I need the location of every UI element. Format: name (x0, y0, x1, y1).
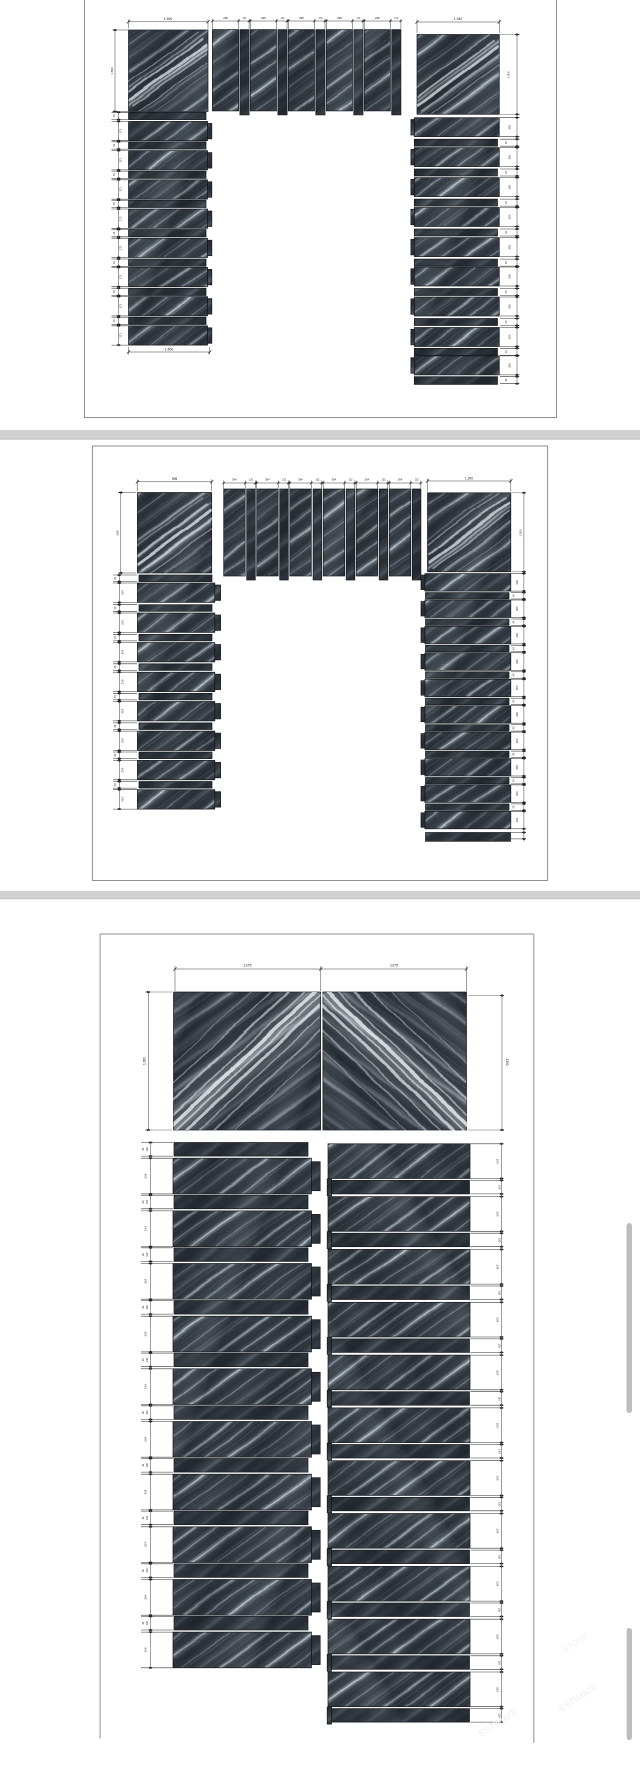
svg-text:334: 334 (495, 1581, 499, 1586)
svg-text:132: 132 (282, 479, 287, 482)
svg-text:130: 130 (498, 1238, 502, 1243)
svg-text:334: 334 (495, 1528, 499, 1533)
svg-text:130: 130 (145, 1199, 149, 1204)
svg-text:334: 334 (495, 1634, 499, 1639)
svg-text:1.340: 1.340 (454, 17, 463, 21)
svg-text:130: 130 (498, 1555, 502, 1560)
svg-text:130: 130 (498, 1185, 502, 1190)
svg-text:300: 300 (508, 244, 512, 249)
svg-text:1.500: 1.500 (519, 529, 523, 536)
svg-text:364: 364 (398, 478, 403, 482)
svg-text:130: 130 (145, 1357, 149, 1362)
svg-text:300: 300 (515, 764, 519, 769)
svg-text:130: 130 (498, 1502, 502, 1507)
svg-text:300: 300 (508, 334, 512, 339)
svg-text:314: 314 (121, 590, 125, 595)
svg-text:172: 172 (318, 17, 323, 20)
svg-text:314: 314 (121, 708, 125, 713)
svg-text:334: 334 (495, 1264, 499, 1269)
svg-text:130: 130 (498, 1660, 502, 1665)
svg-text:1.500: 1.500 (110, 67, 114, 75)
svg-text:334: 334 (495, 1423, 499, 1428)
svg-text:298: 298 (223, 16, 228, 20)
svg-text:300: 300 (515, 817, 519, 822)
svg-text:364: 364 (365, 478, 370, 482)
svg-text:171: 171 (119, 187, 123, 192)
svg-text:334: 334 (144, 1437, 148, 1442)
svg-text:334: 334 (144, 1384, 148, 1389)
svg-text:300: 300 (508, 363, 512, 368)
svg-text:334: 334 (495, 1687, 499, 1692)
svg-text:ESTIMATE: ESTIMATE (557, 1681, 600, 1714)
svg-text:314: 314 (121, 767, 125, 772)
svg-text:364: 364 (232, 478, 237, 482)
svg-text:171: 171 (119, 303, 123, 308)
svg-text:334: 334 (495, 1370, 499, 1375)
svg-text:364: 364 (265, 478, 270, 482)
svg-text:334: 334 (144, 1647, 148, 1652)
svg-text:171: 171 (119, 216, 123, 221)
svg-text:300: 300 (515, 791, 519, 796)
svg-text:1300: 1300 (505, 1058, 509, 1065)
svg-text:300: 300 (515, 659, 519, 664)
svg-text:314: 314 (121, 738, 125, 743)
svg-text:130: 130 (145, 1463, 149, 1468)
svg-text:1.500: 1.500 (165, 347, 174, 351)
svg-text:171: 171 (119, 245, 123, 250)
svg-text:130: 130 (145, 1620, 149, 1625)
svg-text:364: 364 (298, 478, 303, 482)
svg-text:1375: 1375 (390, 963, 398, 967)
svg-text:300: 300 (515, 738, 519, 743)
svg-text:298: 298 (375, 16, 380, 20)
svg-text:1.500: 1.500 (507, 71, 511, 78)
svg-text:334: 334 (495, 1211, 499, 1216)
svg-text:132: 132 (249, 479, 254, 482)
svg-text:334: 334 (144, 1226, 148, 1231)
svg-text:298: 298 (299, 16, 304, 20)
svg-text:300: 300 (515, 606, 519, 611)
svg-text:300: 300 (515, 580, 519, 585)
svg-text:314: 314 (121, 649, 125, 654)
svg-text:300: 300 (508, 154, 512, 159)
svg-text:300: 300 (508, 274, 512, 279)
svg-text:334: 334 (495, 1159, 499, 1164)
svg-text:171: 171 (119, 157, 123, 162)
svg-text:334: 334 (144, 1331, 148, 1336)
svg-text:STONE: STONE (560, 1630, 590, 1654)
svg-text:1.300: 1.300 (143, 1057, 147, 1065)
svg-text:300: 300 (508, 184, 512, 189)
svg-text:334: 334 (144, 1279, 148, 1284)
svg-text:300: 300 (515, 712, 519, 717)
svg-text:290: 290 (115, 530, 119, 535)
svg-text:300: 300 (515, 685, 519, 690)
svg-text:998: 998 (172, 477, 178, 481)
svg-text:334: 334 (144, 1489, 148, 1494)
svg-text:334: 334 (144, 1542, 148, 1547)
svg-text:334: 334 (144, 1595, 148, 1600)
svg-text:172: 172 (356, 17, 361, 20)
svg-text:334: 334 (144, 1173, 148, 1178)
svg-text:172: 172 (394, 17, 399, 20)
svg-text:130: 130 (145, 1410, 149, 1415)
svg-text:172: 172 (243, 17, 248, 20)
svg-text:300: 300 (508, 304, 512, 309)
svg-text:1.500: 1.500 (164, 17, 173, 21)
svg-text:132: 132 (349, 479, 354, 482)
svg-text:130: 130 (498, 1291, 502, 1296)
svg-text:130: 130 (145, 1147, 149, 1152)
svg-text:130: 130 (498, 1608, 502, 1613)
svg-text:130: 130 (145, 1305, 149, 1310)
svg-text:132: 132 (315, 479, 320, 482)
svg-text:314: 314 (121, 797, 125, 802)
svg-text:130: 130 (498, 1396, 502, 1401)
svg-text:132: 132 (382, 479, 387, 482)
svg-text:298: 298 (261, 16, 266, 20)
svg-text:171: 171 (119, 333, 123, 338)
svg-text:130: 130 (498, 1449, 502, 1454)
svg-text:130: 130 (145, 1252, 149, 1257)
svg-text:300: 300 (515, 632, 519, 637)
svg-text:298: 298 (337, 16, 342, 20)
svg-text:314: 314 (121, 620, 125, 625)
svg-text:334: 334 (495, 1317, 499, 1322)
svg-text:334: 334 (495, 1476, 499, 1481)
svg-text:171: 171 (119, 274, 123, 279)
svg-text:171: 171 (119, 128, 123, 133)
svg-text:130: 130 (498, 1344, 502, 1349)
svg-text:300: 300 (508, 124, 512, 129)
svg-text:172: 172 (281, 17, 286, 20)
svg-text:130: 130 (145, 1568, 149, 1573)
svg-text:130: 130 (145, 1515, 149, 1520)
svg-text:314: 314 (121, 679, 125, 684)
svg-text:300: 300 (508, 214, 512, 219)
svg-text:364: 364 (332, 478, 337, 482)
svg-text:1.340: 1.340 (465, 476, 473, 480)
svg-text:132: 132 (415, 479, 420, 482)
svg-text:1375: 1375 (244, 963, 252, 967)
